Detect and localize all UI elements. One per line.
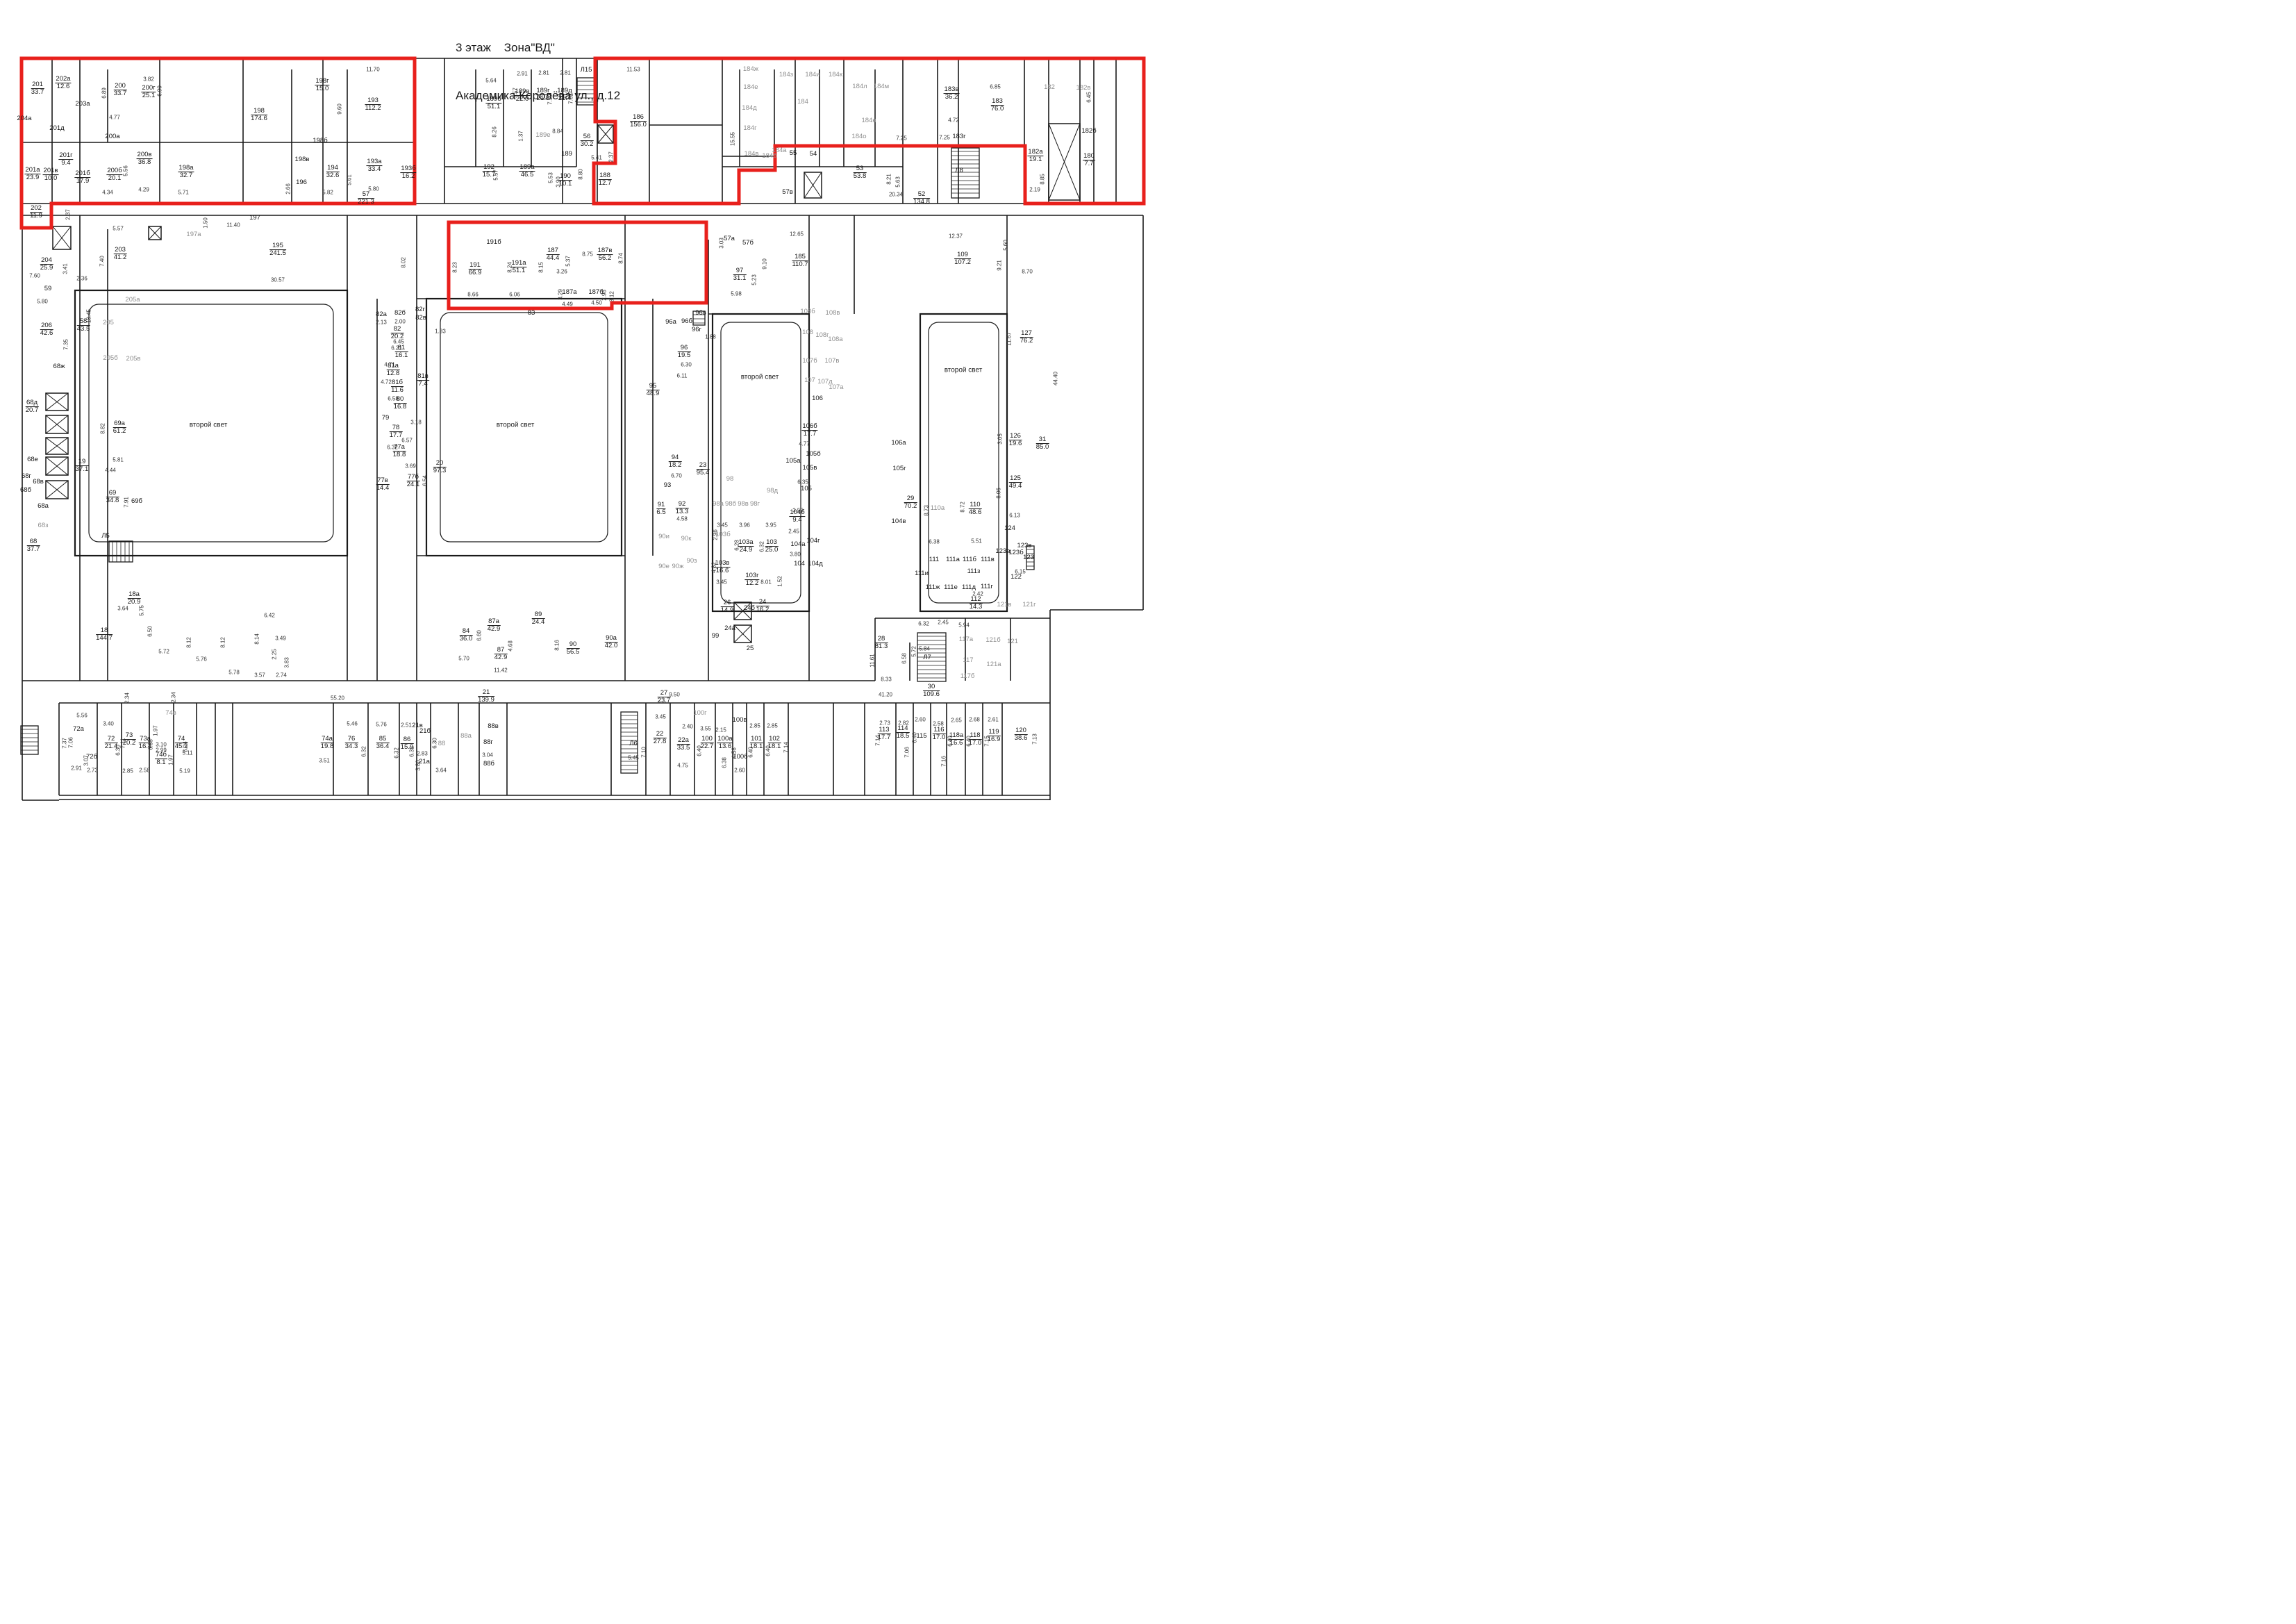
room-label: 2881.3 (875, 636, 888, 651)
room-label: 198г15.0 (315, 78, 329, 93)
room-label: 18144.7 (96, 627, 113, 643)
dimension-label: 6.38 (929, 539, 940, 545)
dimension-label: 5.78 (228, 670, 240, 676)
dimension-label: 41.20 (879, 692, 892, 698)
room-label: 77в14.4 (376, 477, 390, 492)
room-label: 111ж (926, 584, 940, 591)
room-label: 105 (801, 486, 812, 492)
dimension-label: 2.85 (749, 723, 760, 729)
dimension-label: 2.83 (417, 751, 428, 757)
dimension-label: 8.73 (924, 505, 930, 516)
dimension-label: 5.46 (347, 721, 358, 727)
room-label: 191а51.1 (510, 260, 526, 275)
dimension-label: 8.01 (760, 579, 772, 586)
room-label: 68а (38, 503, 49, 510)
room-label: 20211.9 (30, 205, 42, 220)
room-label: 111в (981, 556, 995, 563)
room-label: 201г9.4 (58, 152, 73, 167)
room-label: 203а (75, 101, 90, 108)
room-label: 205а (125, 297, 140, 304)
room-label: 10022.7 (701, 736, 714, 751)
room-label: 88в (488, 723, 499, 730)
room-label: 96а (665, 319, 676, 326)
room-label: 98 (726, 476, 734, 483)
room-label: 88 (438, 740, 446, 747)
room-label: 88г (483, 739, 493, 746)
dimension-label: 1.52 (777, 576, 783, 587)
dimension-label: 8.12 (186, 637, 192, 648)
room-label: 916.5 (656, 502, 665, 517)
room-label: 57а (724, 235, 735, 242)
dimension-label: 2.91 (71, 765, 82, 772)
dimension-label: 3.40 (103, 721, 114, 727)
room-label: 200в36.8 (137, 151, 153, 167)
dimension-label: 5.56 (123, 165, 129, 176)
dimension-label: 6.11 (677, 373, 688, 379)
room-label: 105а (785, 458, 800, 465)
dimension-label: 8.33 (881, 677, 892, 683)
room-label: 105в (803, 465, 817, 472)
room-label: 100г (693, 710, 706, 717)
room-label: 117 (963, 657, 973, 664)
dimension-label: 3.45 (655, 714, 666, 720)
room-label: 103а24.9 (738, 539, 754, 554)
dimension-label: 2.66 (285, 183, 292, 194)
dimension-label: 6.32 (759, 541, 765, 552)
room-label: 6837.7 (27, 538, 40, 554)
dimension-label: 5.76 (376, 722, 387, 728)
dimension-label: 3.51 (319, 758, 330, 764)
dimension-label: 3.07 (83, 755, 90, 766)
room-label: 193б16.2 (400, 165, 416, 181)
dimension-label: 6.40 (748, 747, 754, 758)
room-label: 68в (33, 479, 44, 486)
dimension-label: 6.28 (734, 540, 740, 551)
room-label: 54 (810, 151, 817, 158)
room-label: 201в10.0 (43, 167, 59, 183)
dimension-label: 2.40 (682, 724, 693, 730)
room-label: 25 (747, 645, 754, 652)
dimension-label: 6.85 (990, 84, 1001, 90)
room-label: 9619.5 (678, 345, 691, 360)
dimension-label: 8.75 (582, 251, 593, 258)
dimension-label: 7.91 (124, 497, 130, 508)
room-label: 200б20.1 (106, 167, 122, 183)
hall-label: второй свет (741, 374, 779, 381)
room-label: 185110.7 (792, 254, 808, 269)
room-label: 2227.8 (654, 731, 667, 746)
room-label: 18376.0 (991, 98, 1004, 113)
room-label: 1807.7 (1083, 153, 1095, 168)
room-label: 90е (658, 563, 669, 570)
room-label: 108г (815, 332, 829, 339)
dimension-label: 3.05 (997, 433, 1004, 445)
room-label: 182 (1044, 84, 1055, 91)
dimension-label: 3.55 (792, 508, 804, 514)
room-label: 111з (967, 568, 981, 575)
dimension-label: 9.10 (762, 258, 768, 270)
room-label: 83 (528, 310, 535, 317)
room-label: 22а33.5 (677, 737, 690, 752)
dimension-label: 11.70 (366, 67, 379, 73)
dimension-label: 5.75 (139, 605, 145, 616)
dimension-label: 5.51 (971, 538, 982, 545)
room-label: 184л (852, 83, 867, 90)
room-label: 98д (767, 488, 778, 495)
room-label: 96в (695, 310, 706, 317)
dimension-label: 6.70 (671, 473, 682, 479)
plan-title-line1: 3 этаж Зона"ВД" (456, 40, 620, 56)
room-label: 21139.9 (478, 689, 494, 704)
room-label: 20642.6 (40, 322, 53, 338)
room-label: 18812.7 (599, 172, 612, 188)
room-label: 20133.7 (31, 81, 44, 97)
room-label: 68г (22, 473, 31, 480)
dimension-label: 7.16 (941, 756, 947, 767)
dimension-label: 4.44 (105, 467, 116, 474)
dimension-label: 5.70 (458, 656, 469, 662)
room-label: 12549.4 (1009, 475, 1022, 490)
room-label: 184д (742, 105, 756, 112)
dimension-label: 20.34 (889, 192, 903, 198)
room-label: 2395.4 (697, 462, 710, 477)
room-label: 197а (186, 231, 201, 238)
dimension-label: 5.81 (113, 457, 124, 463)
dimension-label: 2.96 (713, 529, 719, 540)
dimension-label: 7.14 (783, 742, 790, 753)
dimension-label: 6.15 (1015, 569, 1026, 575)
room-label: 183в36.2 (944, 86, 960, 101)
room-label: 77б24.1 (407, 474, 420, 489)
dimension-label: 5.61 (347, 174, 353, 185)
room-label: 108а (828, 336, 842, 343)
room-label: 11214.3 (970, 596, 983, 611)
dimension-label: 2.45 (788, 529, 799, 535)
room-label: 104 (794, 561, 805, 567)
room-label: 20033.7 (114, 83, 127, 98)
room-label: 69а61.2 (113, 420, 126, 436)
dimension-label: 3.49 (275, 636, 286, 642)
dimension-label: 6.90 (157, 85, 163, 97)
dimension-label: 2.68 (969, 717, 980, 723)
dimension-label: 2.85 (122, 768, 133, 774)
room-label: 182в (1076, 85, 1091, 92)
room-label: 8436.0 (460, 628, 473, 643)
room-label: 105г (892, 465, 906, 472)
dimension-label: 5.63 (895, 176, 901, 188)
room-label: 201д (49, 125, 64, 132)
room-label: 2614.9 (721, 599, 734, 615)
dimension-label: 7.37 (62, 738, 68, 749)
dimension-label: 6.32 (918, 621, 929, 627)
room-label: 106б17.7 (801, 423, 817, 438)
dimension-label: 5.11 (183, 750, 193, 756)
dimension-label: 7.40 (99, 256, 106, 267)
dimension-label: 5.98 (731, 291, 742, 297)
room-label: 186156.0 (630, 114, 647, 129)
room-label: 121а (986, 661, 1001, 668)
room-label: 193а33.4 (366, 158, 382, 174)
room-label: 2416.2 (756, 599, 770, 614)
dimension-label: 4.29 (138, 187, 149, 193)
room-label: 108 (802, 329, 813, 336)
dimension-label: 6.40 (912, 732, 918, 743)
dimension-label: 6.32 (409, 746, 415, 757)
dimension-label: 3.45 (716, 579, 727, 586)
dimension-label: 1.50 (203, 217, 209, 229)
dimension-label: 1.88 (705, 334, 716, 340)
room-label: 90и (658, 533, 669, 540)
dimension-label: 3.96 (739, 522, 750, 529)
dimension-label: 8.70 (1022, 269, 1033, 275)
dimension-label: 2.58 (933, 721, 944, 727)
dimension-label: 5.80 (368, 186, 379, 192)
dimension-label: 6.13 (1009, 513, 1020, 519)
dimension-label: 2.60 (915, 717, 926, 723)
dimension-label: 12.65 (790, 231, 804, 238)
dimension-label: 4.58 (731, 747, 738, 759)
dimension-label: 6.35 (797, 479, 808, 486)
room-label: 12619.6 (1009, 433, 1022, 448)
room-label: 108в (826, 310, 840, 317)
dimension-label: 8.23 (452, 262, 458, 273)
dimension-label: 3.80 (415, 760, 422, 771)
room-label: 69б (131, 498, 142, 505)
room-label: 121б (985, 637, 1000, 644)
room-label: 12776.2 (1020, 330, 1033, 345)
dimension-label: 5.94 (958, 622, 970, 629)
room-label: 195241.5 (269, 242, 286, 258)
room-label: 30109.6 (923, 683, 940, 699)
room-label: 18а20.9 (128, 591, 141, 606)
room-label: 204а (17, 115, 31, 122)
room-label: 68е (27, 456, 38, 463)
dimension-label: 1.97 (168, 754, 174, 765)
room-label: 2097.3 (433, 460, 447, 475)
room-label: 82б (394, 310, 406, 317)
room-label: 198б (313, 138, 327, 144)
room-label: 202а12.6 (55, 76, 71, 91)
dimension-label: 5.84 (919, 646, 930, 652)
room-label: 123б (1008, 549, 1023, 556)
dimension-label: 8.15 (538, 262, 544, 273)
dimension-label: 7.60 (29, 273, 40, 279)
room-label: 68ж (53, 363, 65, 370)
dimension-label: 8.06 (996, 488, 1002, 499)
dimension-label: 2.45 (938, 620, 949, 626)
dimension-label: 3.82 (143, 76, 154, 83)
room-label: 108б (800, 308, 815, 315)
room-label: 111и (915, 570, 929, 577)
room-label: 107а (829, 384, 843, 391)
room-label: 184и (805, 72, 820, 78)
dimension-label: 5.37 (565, 256, 572, 267)
room-label: 68з (38, 522, 49, 529)
dimension-label: 5.53 (548, 172, 554, 183)
dimension-label: 6.40 (947, 736, 954, 747)
dimension-label: 4.77 (109, 115, 120, 121)
room-label: 9056.5 (567, 641, 580, 656)
room-label: 98а (713, 501, 724, 508)
dimension-label: 7.14 (875, 735, 881, 746)
room-label: 123в (1017, 542, 1032, 549)
room-label: 191б (486, 239, 501, 246)
dimension-label: 3.45 (717, 522, 728, 529)
room-label: 123 (1023, 554, 1034, 561)
room-label: 104в (892, 518, 906, 525)
room-label: 205в (126, 356, 141, 363)
room-label: 184ж (743, 66, 758, 73)
room-label: Л8 (955, 167, 963, 174)
dimension-label: 2.85 (767, 723, 778, 729)
room-label: 107в (825, 358, 840, 365)
room-label: 184е (743, 84, 758, 91)
dimension-label: 7.15 (984, 736, 990, 747)
dimension-label: 5.76 (196, 656, 207, 663)
dimension-label: 3.04 (482, 752, 493, 759)
dimension-label: 2.61 (988, 717, 999, 723)
room-label: 184о (851, 133, 866, 140)
dimension-label: 11.42 (494, 668, 507, 674)
dimension-label: 6.30 (681, 362, 692, 368)
dimension-label: 3.12 (609, 291, 615, 302)
room-label: 68д20.7 (26, 399, 39, 415)
dimension-label: 3.64 (435, 768, 447, 774)
room-label: 100в (733, 717, 747, 724)
room-label: 197 (249, 215, 260, 222)
room-label: 81в7.4 (417, 373, 429, 388)
dimension-label: 3.55 (700, 726, 711, 732)
dimension-label: 7.25 (939, 135, 950, 141)
floor-plan-page: 3 этаж Зона"ВД" Академика Королёва ул., … (0, 0, 1148, 812)
dimension-label: 6.54 (422, 475, 429, 486)
dimension-label: 2.19 (1029, 187, 1040, 193)
room-label: 201а23.9 (24, 167, 40, 182)
room-label: 6934.8 (106, 490, 119, 505)
dimension-label: 3.57 (254, 672, 265, 679)
dimension-label: 2.34 (124, 693, 131, 704)
dimension-label: 5.72 (911, 646, 917, 657)
dimension-label: 8.72 (960, 502, 966, 513)
room-label: 98г (750, 501, 760, 508)
room-label: 200а (105, 133, 119, 140)
dimension-label: 4.49 (562, 301, 573, 308)
room-label: 19432.6 (326, 165, 340, 180)
dimension-label: 2.51 (401, 722, 412, 729)
dimension-label: 2.34 (171, 692, 177, 703)
room-label: 117б (960, 673, 975, 680)
room-label: 10325.0 (765, 539, 779, 554)
room-label: 200г25.1 (141, 85, 156, 100)
room-label: 9418.2 (669, 454, 682, 470)
room-label: 21б (419, 728, 431, 735)
room-label: 182а19.1 (1027, 149, 1043, 164)
dimension-label: 2.15 (715, 727, 726, 734)
dimension-label: 6.40 (697, 745, 703, 756)
dimension-label: 7.11 (120, 738, 126, 749)
dimension-label: 6.45 (1086, 92, 1092, 103)
dimension-label: 4.58 (676, 516, 688, 522)
room-label: 106 (812, 395, 823, 402)
room-label: 11048.6 (969, 502, 982, 517)
dimension-label: 5.60 (1003, 240, 1009, 251)
room-label: 111е (944, 584, 958, 591)
room-label: 24б (744, 605, 755, 612)
room-label: 104д (808, 561, 822, 567)
dimension-label: 6.32 (387, 445, 398, 451)
room-label: 90ж (672, 563, 684, 570)
dimension-label: 7.10 (641, 747, 647, 758)
dimension-label: 6.58 (901, 653, 908, 664)
hall-label: второй свет (497, 422, 535, 429)
dimension-label: 5.19 (179, 768, 190, 774)
dimension-label: 2.42 (972, 591, 983, 597)
room-label: 9213.3 (676, 501, 689, 516)
room-label: 106а (891, 440, 906, 447)
plan-title-line2: Академика Королёва ул., д.12 (456, 88, 620, 104)
room-label: 8742.9 (494, 647, 508, 662)
dimension-label: 6.32 (361, 746, 367, 757)
hall-label: второй свет (190, 422, 228, 429)
dimension-label: 2.60 (734, 768, 745, 774)
room-label: 90з (687, 558, 697, 565)
room-label: 68б (20, 487, 31, 494)
room-label: Л5 (101, 533, 110, 540)
dimension-label: 9.60 (337, 103, 343, 115)
dimension-label: 8.82 (100, 423, 106, 434)
room-label: 184г (743, 125, 756, 132)
room-label: 184м (874, 83, 889, 90)
dimension-label: 4.68 (508, 640, 514, 652)
room-label: 19166.9 (469, 262, 482, 277)
dimension-label: 5.72 (158, 649, 169, 655)
room-label: 121г (1022, 602, 1035, 608)
dimension-label: 5.45 (628, 755, 639, 761)
dimension-label: 6.57 (401, 438, 413, 444)
room-label: 184н (861, 117, 876, 124)
dimension-label: 6.40 (765, 745, 772, 756)
room-label: 72а (73, 726, 84, 733)
dimension-label: 6.45 (393, 339, 404, 345)
dimension-label: 4.72 (948, 117, 959, 124)
room-label: 55 (790, 150, 797, 157)
dimension-label: 11.40 (226, 222, 240, 229)
room-label: 98б (725, 501, 736, 508)
room-label: 57в (782, 189, 793, 196)
dimension-label: 6.58 (388, 396, 399, 402)
dimension-label: 6.50 (147, 626, 153, 637)
room-label: Л6 (629, 740, 638, 747)
dimension-label: 4.71 (384, 362, 395, 368)
room-label: 8536.4 (376, 736, 390, 751)
dimension-label: 4.72 (381, 379, 392, 386)
room-label: 184в (744, 151, 759, 158)
room-label: 7817.7 (390, 424, 403, 440)
room-label: 11617.0 (933, 727, 946, 742)
dimension-label: 2.13 (376, 320, 387, 326)
dimension-label: 6.42 (264, 613, 275, 619)
dimension-label: 2.73 (87, 768, 98, 774)
dimension-label: 8.24 (507, 262, 513, 273)
dimension-label: 3.26 (556, 269, 567, 275)
room-label: 121 (1007, 638, 1018, 645)
room-label: 24а (724, 625, 735, 632)
dimension-label: 8.12 (220, 637, 226, 648)
room-label: 187а (562, 289, 576, 296)
room-label: 111 (929, 556, 939, 563)
room-label: 8924.4 (532, 611, 545, 627)
dimension-label: 6.38 (722, 757, 728, 768)
